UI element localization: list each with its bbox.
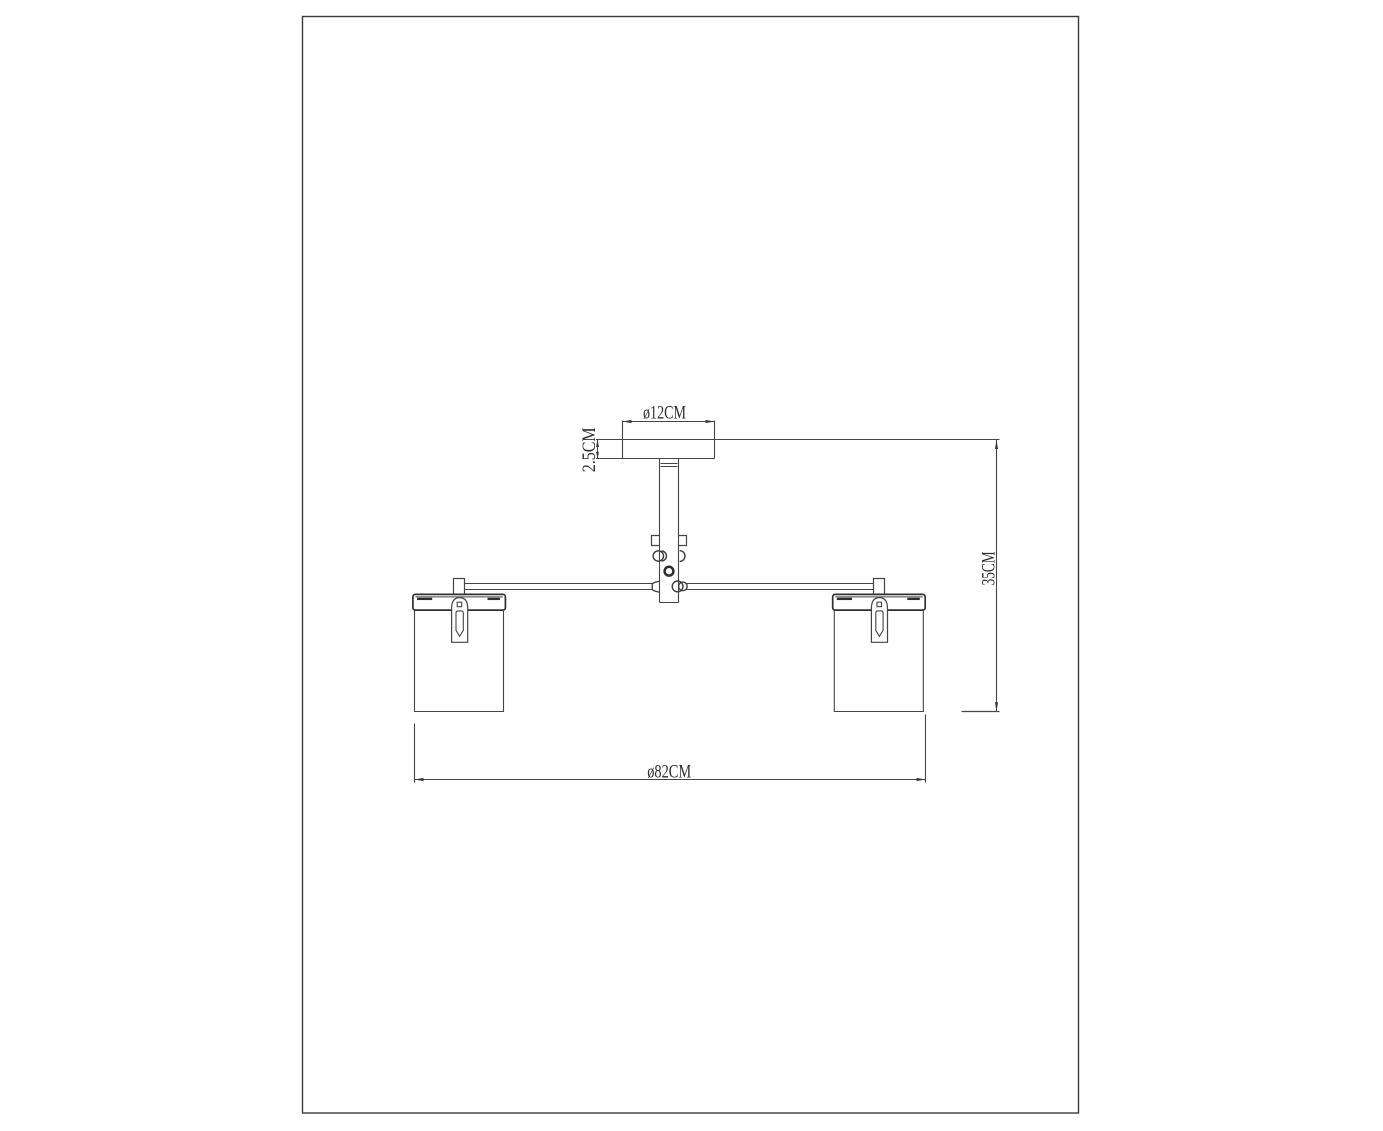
svg-text:ø12CM: ø12CM [643, 402, 686, 423]
svg-text:ø82CM: ø82CM [647, 761, 691, 782]
svg-text:2.5CM: 2.5CM [579, 427, 600, 472]
svg-text:35CM: 35CM [979, 551, 1000, 585]
